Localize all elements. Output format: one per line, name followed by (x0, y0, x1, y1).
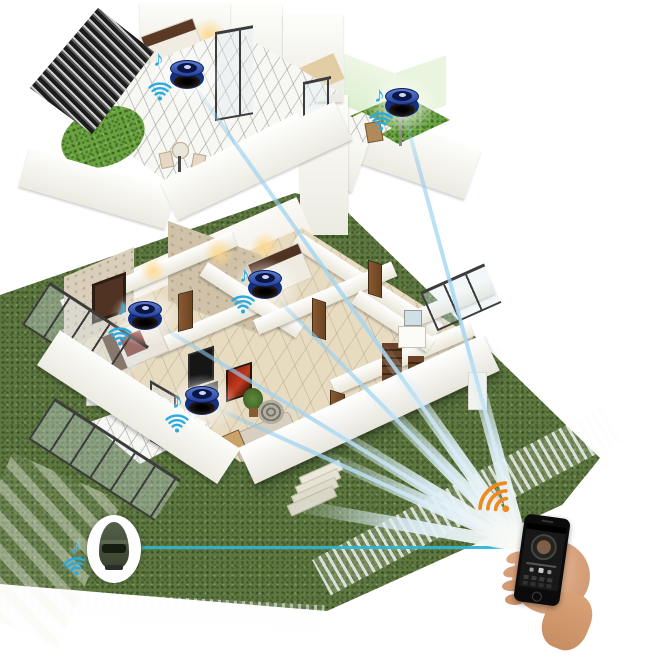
room-door (368, 260, 382, 299)
room-door (178, 290, 193, 332)
bathroom-mirror (404, 310, 422, 326)
speaker-led (399, 93, 406, 97)
music-note-icon: ♪ (374, 82, 385, 108)
app-status-bar (526, 523, 566, 535)
compatibility-footer: iOS dlna Airplay Wi Fi (0, 610, 654, 664)
garden-speaker-slot (102, 544, 126, 553)
speaker-led (262, 275, 269, 279)
round-armchair (258, 400, 284, 424)
wifi-signal-icon (164, 414, 190, 434)
next-button (547, 570, 552, 575)
wifi-signal-icon (107, 327, 133, 347)
garden-speaker-foot (105, 565, 123, 570)
right-railing (420, 264, 501, 332)
wifi-signal-icon (368, 112, 394, 132)
wall-lamp-glow (204, 238, 234, 268)
music-note-icon: ♪ (117, 295, 128, 321)
music-note-icon: ♪ (153, 46, 164, 72)
home-button (531, 591, 542, 602)
phone-screen (518, 523, 567, 592)
scene-canvas: ♪ ♪ ♪ ♪ ♪ ♪ (0, 0, 654, 664)
plant-pot (249, 408, 258, 417)
phone-earpiece (541, 520, 553, 524)
prev-button (529, 567, 534, 572)
wifi-signal-icon (147, 82, 173, 102)
speaker-led (142, 306, 149, 310)
patio-table-leg (178, 156, 181, 172)
ac-unit (468, 372, 487, 410)
music-note-icon: ♪ (239, 262, 250, 288)
album-art (536, 539, 552, 555)
speaker-led (199, 391, 206, 395)
bathroom-vanity (398, 326, 426, 348)
room-door (312, 298, 326, 341)
play-button (538, 568, 544, 574)
wall-lamp-glow (140, 258, 166, 284)
speaker-led (184, 65, 191, 69)
album-art-ring (529, 532, 558, 561)
wifi-signal-icon (230, 295, 256, 315)
music-note-icon: ♪ (172, 388, 183, 414)
